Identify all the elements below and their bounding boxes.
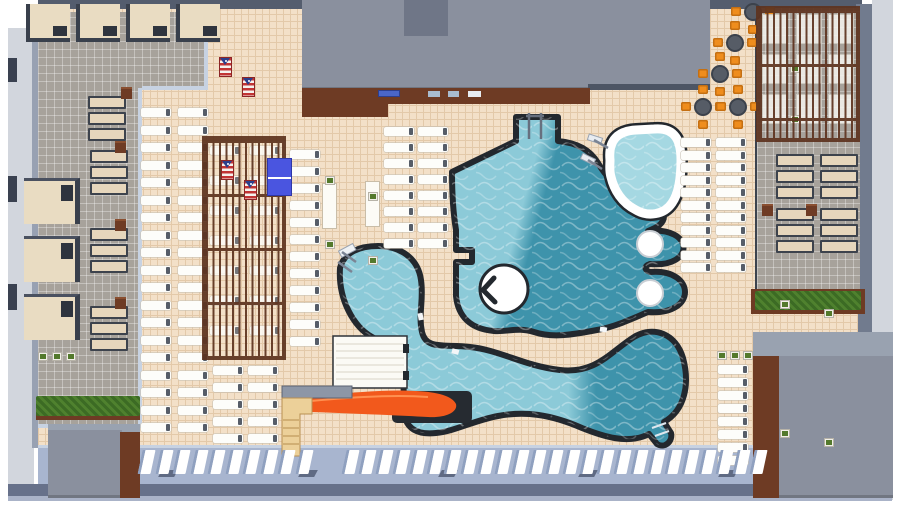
lounger [178,406,208,415]
planter [368,256,378,265]
planter [38,352,48,361]
round-table [726,34,744,52]
side-table [115,141,126,153]
lounger [290,184,320,193]
lounger [681,138,711,147]
lounger [718,430,748,439]
lounger [207,450,225,474]
daybed [90,166,128,179]
lounger-column-j [248,366,278,443]
lounger [137,450,155,474]
lounger [341,450,359,474]
lounger [172,450,190,474]
daybed [776,224,814,237]
planter [743,351,753,360]
daybed-group [88,96,126,141]
lounger [613,450,631,474]
chair [733,85,743,94]
lounger [426,450,444,474]
lounger [141,143,171,152]
lounger [681,201,711,210]
side-table [806,204,817,216]
lounger [141,231,171,240]
lounger [681,176,711,185]
lounger [681,163,711,172]
daybed-table [322,183,337,229]
lounger [418,239,448,248]
bottom-lounger-row-a [140,450,311,474]
lounger [358,450,376,474]
water-slide [282,386,472,456]
planter [52,352,62,361]
side-table [762,204,773,216]
lounger [384,143,414,152]
planter [824,438,834,447]
planter [780,429,790,438]
cornhole-board [244,180,257,200]
daybed [776,240,814,253]
shade-structure [333,336,409,388]
lounger [155,450,173,474]
lounger [290,320,320,329]
chair [698,85,708,94]
lounger [443,450,461,474]
lounger [141,423,171,432]
lounger [141,266,171,275]
lounger [141,161,171,170]
daybed [820,186,858,199]
daybed [776,170,814,183]
planter-row [38,352,76,361]
cabana [126,4,170,42]
lounger [290,150,320,159]
lounger [718,378,748,387]
planter [717,351,727,360]
lounger [718,391,748,400]
lounger [681,263,711,272]
lounger [477,450,495,474]
lounger [384,239,414,248]
lounger [225,450,243,474]
daybed [88,128,126,141]
lounger [384,223,414,232]
counter-item [428,91,440,97]
daybed [90,260,128,273]
chair [715,52,725,61]
lounger [290,201,320,210]
lounger [290,269,320,278]
planter [325,176,335,185]
lounger [141,283,171,292]
round-table [694,98,712,116]
chair [713,38,723,47]
lounger [596,450,614,474]
lounger [418,223,448,232]
lounger [630,450,648,474]
bottom-right-building [779,356,893,498]
chair [698,69,708,78]
lounger [562,450,580,474]
daybed [776,154,814,167]
lounger [418,191,448,200]
lounger [418,207,448,216]
planter-row [717,351,753,360]
cornhole-board [221,160,234,180]
counter-item [448,91,459,97]
daybed [90,322,128,335]
lounger [141,336,171,345]
building-wood-side [753,356,779,498]
lounger [716,213,746,222]
lounger [290,235,320,244]
lounger [178,423,208,432]
lounger [213,417,243,426]
lounger [141,406,171,415]
lounger-column-d [384,127,414,248]
lounger [732,450,750,474]
lounger [681,213,711,222]
lounger [141,301,171,310]
lounger-column-f [681,138,711,272]
lounger [716,188,746,197]
pergola-right [756,6,860,142]
lounger [290,252,320,261]
lounger-column-e [418,127,448,248]
lounger [384,159,414,168]
slide-platform [282,386,352,398]
lounger-column-c [290,150,320,346]
cabana [24,236,80,282]
cabana-column-left [24,178,80,340]
lounger [213,366,243,375]
lounger [716,176,746,185]
lounger-column-g [716,138,746,272]
lounger [248,400,278,409]
lounger [716,151,746,160]
daybed-cluster [820,154,858,199]
lounger [277,450,295,474]
lounger [141,213,171,222]
chair [716,102,726,111]
daybed [90,338,128,351]
lounger-column-i [213,366,243,443]
lounger-column-a [141,108,171,432]
lounger [681,188,711,197]
planter [730,351,740,360]
lounger [716,238,746,247]
lounger [418,175,448,184]
lounger [141,353,171,362]
counter-item [378,90,400,97]
daybed [88,112,126,125]
slide-stair-tower [282,398,312,456]
building-wood-side [120,432,140,498]
round-table [729,98,747,116]
lounger [528,450,546,474]
lounger [141,108,171,117]
planter [780,300,790,309]
round-table [711,65,729,83]
daybed [90,182,128,195]
pool-plan-canvas [0,0,900,506]
lounger [715,450,733,474]
daybed [820,154,858,167]
round-pod [637,280,663,306]
lounger [716,251,746,260]
lounger [260,450,278,474]
daybed [90,244,128,257]
daybed-group [90,228,128,273]
lounger [409,450,427,474]
lounger [418,159,448,168]
pergola-slats [756,6,860,142]
lounger [290,337,320,346]
lounger [749,450,767,474]
lounger [375,450,393,474]
lounger [213,400,243,409]
planter [824,309,834,318]
chair [681,102,691,111]
cabana-row-top [26,4,220,42]
lounger [141,371,171,380]
lounger [213,434,243,443]
daybed-cluster [820,208,858,253]
lounger [290,167,320,176]
lounger [141,318,171,327]
lounger [178,126,208,135]
lounger [716,263,746,272]
ping-pong-table [267,158,292,196]
lounger [290,303,320,312]
lounger [248,366,278,375]
lounger [718,417,748,426]
cornhole-board [242,77,255,97]
lounger [681,251,711,260]
chair [732,69,742,78]
planter [368,192,378,201]
lounger [716,138,746,147]
rooftop-unit [404,0,448,36]
cabana [24,294,80,340]
lounger [178,108,208,117]
lounger [141,126,171,135]
lounger [718,404,748,413]
lounger [418,143,448,152]
lounger [545,450,563,474]
lounger [248,417,278,426]
lounger [178,371,208,380]
daybed [776,186,814,199]
planter [325,240,335,249]
cabana [76,4,120,42]
daybed-table [365,181,380,227]
lounger [384,191,414,200]
lounger [295,450,313,474]
daybed-group [90,150,128,195]
lounger [716,201,746,210]
lounger [248,434,278,443]
lounger [681,450,699,474]
daybed [820,208,858,221]
lounger [178,388,208,397]
lounger [141,388,171,397]
daybed [820,240,858,253]
planter [66,352,76,361]
lounger [384,175,414,184]
bottom-lounger-row-b [344,450,765,474]
chair [731,7,741,16]
cabana [176,4,220,42]
lounger [248,383,278,392]
lounger [698,450,716,474]
lounger [290,218,320,227]
chair [698,120,708,129]
lounger [141,248,171,257]
bar-counter-step [302,102,388,117]
cabana [24,178,80,224]
daybed [820,224,858,237]
lounger [384,207,414,216]
lounger [681,226,711,235]
lounger [190,450,208,474]
counter-item [468,91,481,97]
lounger [681,151,711,160]
lounger [392,450,410,474]
daybed [820,170,858,183]
bottom-left-building [48,430,122,498]
cornhole-board [219,57,232,77]
lounger [579,450,597,474]
side-table [115,297,126,309]
lounger [213,383,243,392]
lounger [460,450,478,474]
cabana [26,4,70,42]
side-table [115,219,126,231]
lounger [290,286,320,295]
lounger [681,238,711,247]
daybed-group [90,306,128,351]
dining-table-set [716,85,760,129]
lounger [494,450,512,474]
lounger [718,365,748,374]
lounger [664,450,682,474]
lounger [141,178,171,187]
round-pod [637,231,663,257]
lounger [716,226,746,235]
lounger [647,450,665,474]
main-building [302,0,710,90]
chair [733,120,743,129]
daybed-cluster [776,154,814,199]
lounger [141,196,171,205]
chair [730,21,740,30]
lounger [242,450,260,474]
lounger [716,163,746,172]
lounger [418,127,448,136]
lounger [384,127,414,136]
lounger [511,450,529,474]
side-table [121,87,132,99]
